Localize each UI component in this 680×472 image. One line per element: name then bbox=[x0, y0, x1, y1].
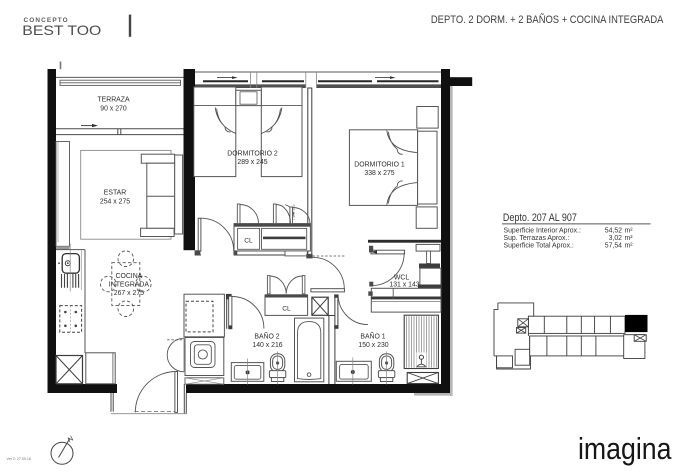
svg-text:150 x 230: 150 x 230 bbox=[358, 342, 388, 349]
svg-text:90 x 270: 90 x 270 bbox=[100, 106, 127, 113]
svg-text:CL: CL bbox=[282, 306, 291, 313]
svg-text:ESTAR: ESTAR bbox=[104, 190, 126, 197]
svg-text:57,54: 57,54 bbox=[605, 243, 622, 250]
svg-text:Sup. Terrazas Aprox.:: Sup. Terrazas Aprox.: bbox=[504, 235, 570, 242]
svg-text:INTEGRADA: INTEGRADA bbox=[109, 282, 150, 289]
svg-text:289 x 245: 289 x 245 bbox=[237, 159, 267, 166]
svg-text:DORMITORIO 1: DORMITORIO 1 bbox=[354, 161, 405, 168]
svg-text:m²: m² bbox=[625, 243, 634, 250]
svg-text:338 x 275: 338 x 275 bbox=[364, 170, 394, 177]
svg-text:Ver 2: 27.09.18: Ver 2: 27.09.18 bbox=[7, 457, 31, 461]
svg-text:m²: m² bbox=[625, 235, 634, 242]
svg-text:254 x 275: 254 x 275 bbox=[100, 198, 130, 205]
svg-text:Depto. 207 AL 907: Depto. 207 AL 907 bbox=[503, 212, 577, 224]
svg-text:3,02: 3,02 bbox=[609, 235, 623, 242]
svg-text:DORMITORIO 2: DORMITORIO 2 bbox=[227, 150, 278, 157]
svg-text:imagina: imagina bbox=[578, 432, 672, 466]
svg-text:Superficie Interior Aprox.:: Superficie Interior Aprox.: bbox=[504, 228, 581, 235]
svg-text:BEST TOO: BEST TOO bbox=[22, 23, 101, 38]
svg-text:m²: m² bbox=[625, 228, 634, 235]
svg-text:WCL: WCL bbox=[394, 275, 409, 282]
svg-text:COCINA: COCINA bbox=[115, 273, 142, 280]
svg-text:267 x 275: 267 x 275 bbox=[114, 290, 144, 297]
svg-text:54,52: 54,52 bbox=[605, 228, 622, 235]
svg-text:BAÑO 2: BAÑO 2 bbox=[254, 332, 279, 341]
svg-text:140 x 216: 140 x 216 bbox=[252, 342, 282, 349]
svg-text:BAÑO 1: BAÑO 1 bbox=[360, 332, 385, 341]
svg-text:131 x 143: 131 x 143 bbox=[389, 282, 419, 289]
svg-text:CL: CL bbox=[244, 238, 253, 245]
svg-text:Superficie Total Aprox.:: Superficie Total Aprox.: bbox=[504, 243, 574, 250]
svg-text:DEPTO. 2 DORM. + 2 BAÑOS + COC: DEPTO. 2 DORM. + 2 BAÑOS + COCINA INTEGR… bbox=[431, 13, 664, 26]
svg-text:TERRAZA: TERRAZA bbox=[97, 97, 130, 104]
